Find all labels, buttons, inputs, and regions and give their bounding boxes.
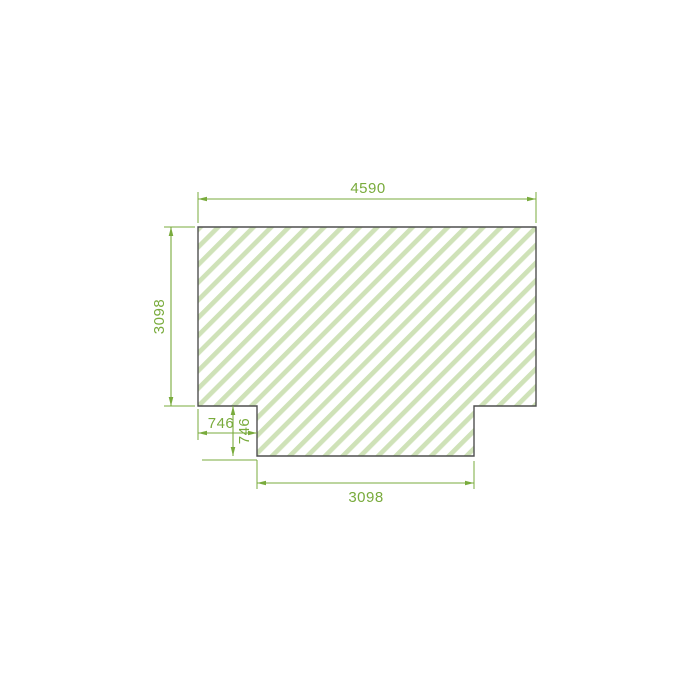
dimension-label: 4590 (350, 180, 385, 197)
dimension-label: 3098 (348, 489, 383, 506)
dimension-label: 746 (236, 418, 253, 445)
technical-drawing: 4590 3098 746 746 (0, 0, 700, 700)
dimension-label: 3098 (151, 299, 168, 334)
drawing-canvas: 4590 3098 746 746 (0, 0, 700, 700)
dimension-label: 746 (208, 415, 235, 432)
